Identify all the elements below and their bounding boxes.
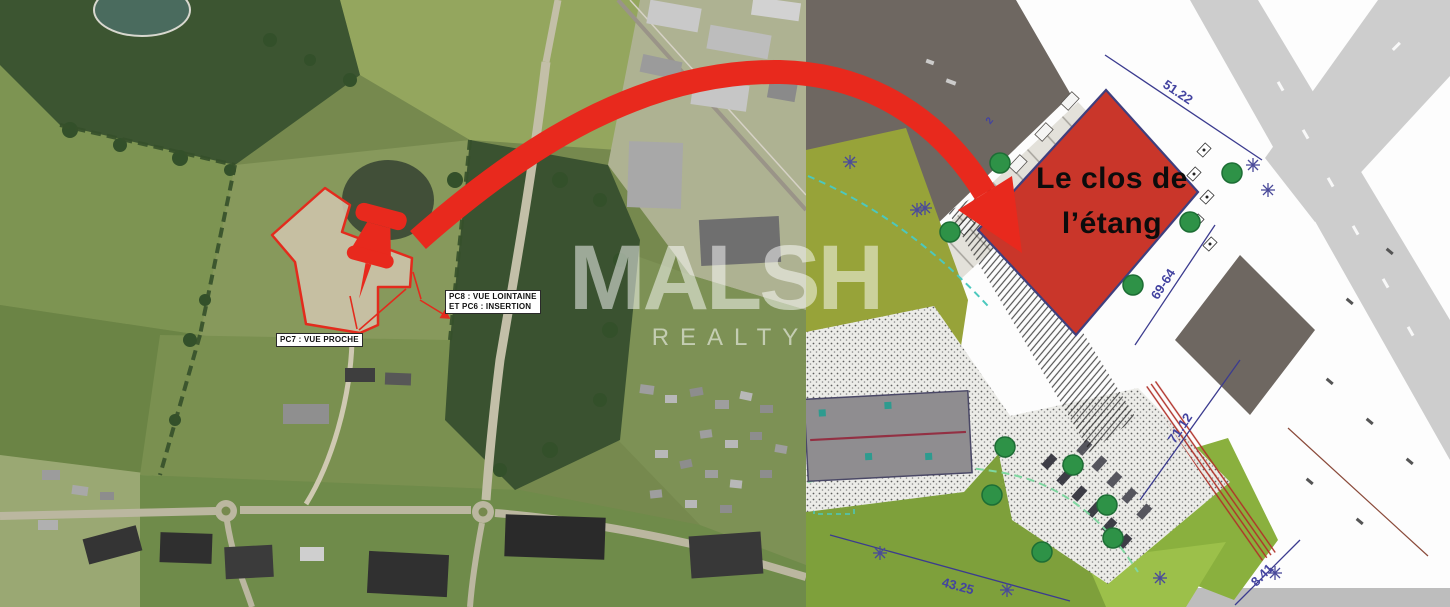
pc7-label: PC7 : VUE PROCHE (276, 333, 363, 347)
property-composite-image: PC7 : VUE PROCHE PC8 : VUE LOINTAINE ET … (0, 0, 1450, 607)
aerial-photo (0, 0, 806, 607)
plan-title-line2: l’étang (1017, 201, 1207, 246)
existing-building (806, 391, 972, 481)
roundabout-right (472, 501, 494, 523)
pc8-label-line2: ET PC6 : INSERTION (449, 302, 537, 312)
roundabout-left (215, 500, 237, 522)
plan-title: Le clos de l’étang (1017, 156, 1207, 246)
pc8-label-line1: PC8 : VUE LOINTAINE (449, 292, 537, 302)
plan-title-line1: Le clos de (1017, 156, 1207, 201)
pc8-label: PC8 : VUE LOINTAINE ET PC6 : INSERTION (445, 290, 541, 314)
site-plan (806, 0, 1450, 607)
